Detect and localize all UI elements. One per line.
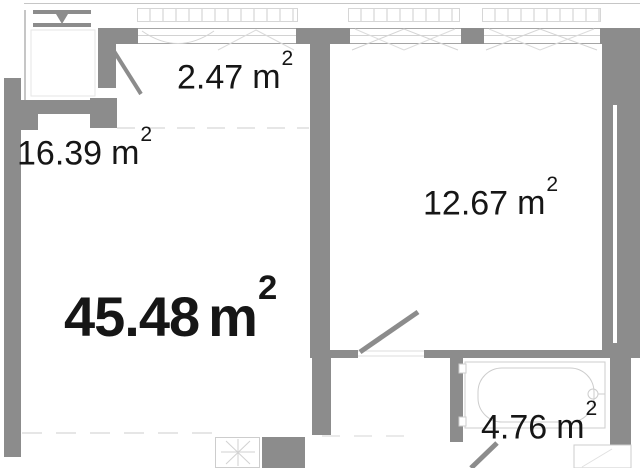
window-frame-line [138, 35, 296, 36]
bedroom-door-swing-icon [360, 312, 418, 352]
window-ledge [137, 8, 298, 22]
floor-plan: 2.47m2 16.39m2 12.67m2 45.48m2 4.76m2 [0, 0, 640, 468]
bedroom-area-label: 12.67m2 [423, 184, 558, 223]
wall-right-exterior [602, 44, 640, 350]
unit-m: m [556, 408, 584, 446]
bathroom-area-value: 4.76 [481, 408, 547, 446]
wall-top-pier [116, 28, 138, 44]
bathroom-door-swing-icon [471, 443, 497, 468]
wall-top-corner [600, 28, 640, 44]
unit-m: m [517, 184, 545, 222]
unit-sup: 2 [140, 123, 152, 146]
facade-outer-line [24, 3, 640, 4]
wall-top-pier [461, 28, 484, 44]
wall-bedroom-bottom-left [310, 350, 358, 358]
window-bedroom-right [484, 28, 600, 44]
wall-seam-line [613, 105, 617, 343]
unit-sup: 2 [258, 269, 276, 307]
area-unit: m2 [111, 134, 152, 172]
bedroom-area-value: 12.67 [423, 184, 508, 222]
unit-sup: 2 [586, 397, 598, 420]
wall-central [310, 44, 330, 357]
unit-m: m [111, 134, 139, 172]
hall-area-value: 2.47 [177, 58, 243, 96]
area-unit: m2 [517, 184, 558, 222]
unit-m: m [252, 58, 280, 96]
unit-sup: 2 [546, 173, 558, 196]
balcony-inner-outline [31, 30, 95, 96]
window-bedroom-left [350, 28, 461, 44]
wall-central-lower [312, 357, 331, 435]
wall-top-pier [296, 28, 350, 44]
total-area-label: 45.48m2 [64, 286, 276, 348]
window-direction-icon [56, 14, 68, 24]
balcony-left-line [24, 10, 26, 102]
living-area-value: 16.39 [17, 134, 102, 172]
wall-bathroom-left [450, 358, 463, 442]
bathroom-area-label: 4.76m2 [481, 408, 597, 447]
window-ledge [348, 8, 460, 22]
balcony-door-swing-icon [112, 48, 141, 94]
window-ledge [482, 8, 601, 22]
wall-bathroom-right [610, 358, 631, 468]
living-area-label: 16.39m2 [17, 134, 152, 173]
balcony-window [33, 10, 91, 27]
window-frame-line [484, 35, 600, 36]
ventilation-box [215, 437, 260, 468]
window-living [138, 28, 296, 44]
area-unit: m2 [252, 58, 293, 96]
area-unit: m2 [208, 285, 276, 348]
area-unit: m2 [556, 408, 597, 446]
ventilation-shaft [262, 437, 305, 468]
window-frame-line [350, 35, 461, 36]
wall-bedroom-bottom-right [424, 350, 640, 358]
hall-area-label: 2.47m2 [177, 58, 293, 97]
balcony-right-wall [98, 28, 116, 88]
unit-sup: 2 [282, 47, 294, 70]
unit-m: m [208, 285, 257, 348]
total-area-value: 45.48 [64, 285, 199, 348]
